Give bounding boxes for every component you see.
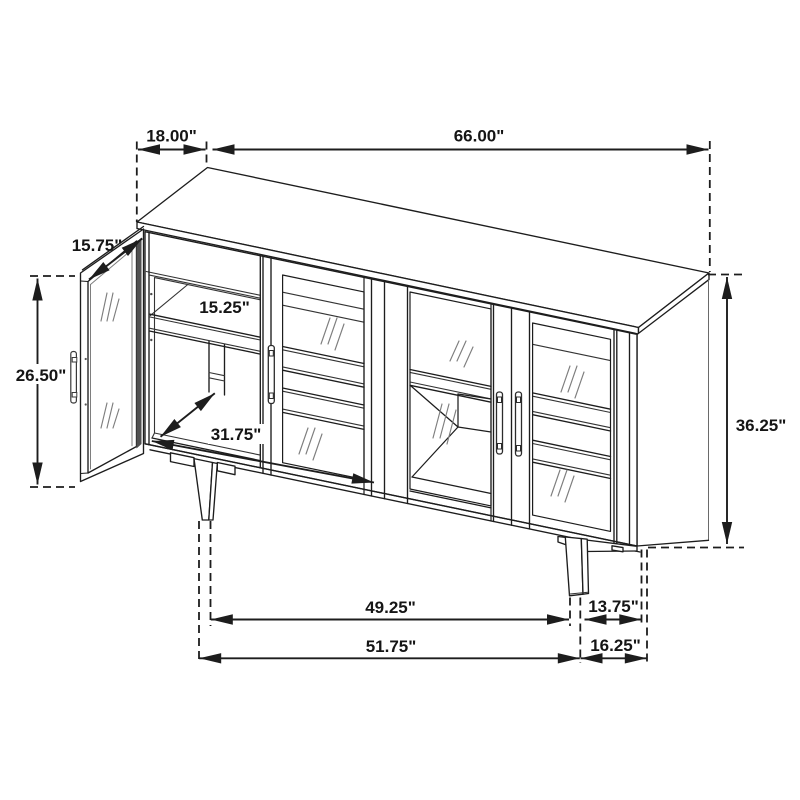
svg-text:66.00": 66.00" [454, 127, 505, 146]
svg-text:15.25": 15.25" [199, 298, 250, 317]
svg-text:16.25": 16.25" [590, 636, 641, 655]
svg-text:51.75": 51.75" [366, 637, 417, 656]
svg-text:49.25": 49.25" [365, 598, 416, 617]
svg-text:36.25": 36.25" [736, 416, 787, 435]
svg-text:26.50": 26.50" [16, 366, 67, 385]
svg-text:15.75": 15.75" [72, 236, 123, 255]
svg-text:13.75": 13.75" [588, 597, 639, 616]
svg-text:18.00": 18.00" [146, 127, 197, 146]
svg-text:31.75": 31.75" [211, 425, 262, 444]
